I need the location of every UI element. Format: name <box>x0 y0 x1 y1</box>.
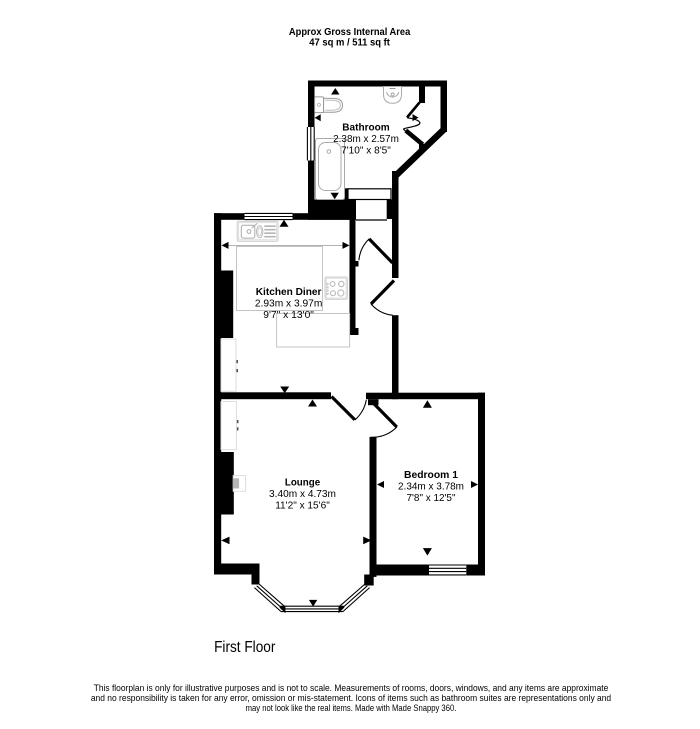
svg-text:may not look like the real ite: may not look like the real items. Made w… <box>246 703 457 713</box>
svg-text:Bedroom 1: Bedroom 1 <box>404 470 458 481</box>
svg-text:Kitchen Diner: Kitchen Diner <box>256 287 322 298</box>
svg-text:2.34m x 3.78m: 2.34m x 3.78m <box>398 482 464 493</box>
svg-text:9'7" x 13'0": 9'7" x 13'0" <box>263 310 314 321</box>
svg-text:7'10" x 8'5": 7'10" x 8'5" <box>341 145 391 156</box>
svg-text:First Floor: First Floor <box>214 638 276 656</box>
svg-text:Lounge: Lounge <box>285 478 321 489</box>
svg-text:11'2" x 15'6": 11'2" x 15'6" <box>275 501 330 512</box>
svg-text:and no responsibility is taken: and no responsibility is taken for any e… <box>91 693 611 703</box>
svg-text:Bathroom: Bathroom <box>342 122 389 133</box>
svg-text:3.40m x 4.73m: 3.40m x 4.73m <box>269 489 336 500</box>
svg-text:47 sq m / 511 sq ft: 47 sq m / 511 sq ft <box>309 37 390 48</box>
svg-text:7'8" x 12'5": 7'8" x 12'5" <box>407 493 456 504</box>
svg-text:2.93m x 3.97m: 2.93m x 3.97m <box>255 299 323 310</box>
svg-text:This floorplan is only for ill: This floorplan is only for illustrative … <box>94 683 609 693</box>
svg-text:2.38m x 2.57m: 2.38m x 2.57m <box>333 134 399 145</box>
